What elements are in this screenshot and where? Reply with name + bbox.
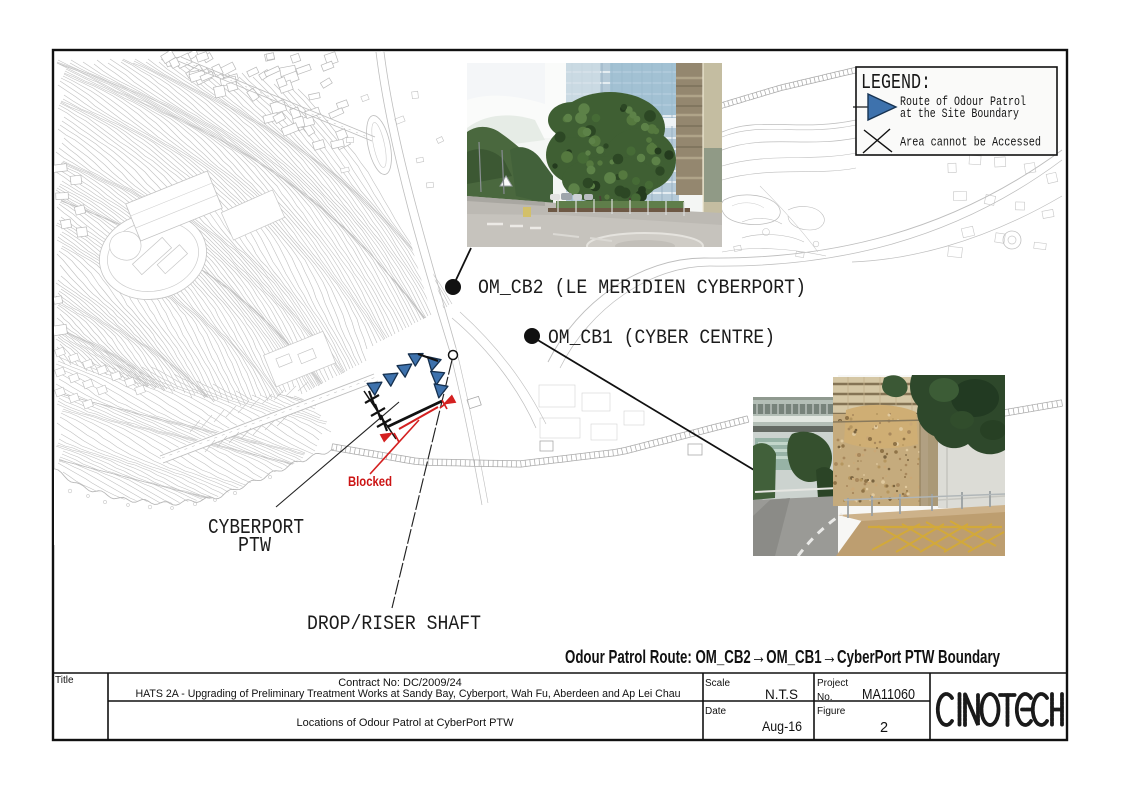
svg-text:N.T.S: N.T.S [765,686,798,702]
svg-text:DROP/RISER SHAFT: DROP/RISER SHAFT [307,613,481,636]
svg-text:Figure: Figure [817,706,846,717]
svg-text:Title: Title [55,675,74,686]
svg-text:Area cannot be Accessed: Area cannot be Accessed [900,136,1041,150]
svg-text:OM_CB1 (CYBER CENTRE): OM_CB1 (CYBER CENTRE) [548,327,775,350]
svg-text:Odour Patrol Route: OM_CB2→OM_: Odour Patrol Route: OM_CB2→OM_CB1→CyberP… [565,645,1000,668]
svg-text:MA11060: MA11060 [862,687,915,703]
svg-text:2: 2 [880,720,888,736]
svg-text:OM_CB2 (LE MERIDIEN CYBERPORT): OM_CB2 (LE MERIDIEN CYBERPORT) [478,277,806,300]
svg-text:PTW: PTW [238,535,271,558]
svg-text:Blocked: Blocked [348,474,392,489]
svg-text:No.: No. [817,692,833,703]
svg-text:Locations of Odour Patrol at C: Locations of Odour Patrol at CyberPort P… [296,717,514,729]
svg-text:Scale: Scale [705,678,730,689]
svg-text:HATS 2A - Upgrading of Prelimi: HATS 2A - Upgrading of Preliminary Treat… [136,688,681,700]
svg-text:Date: Date [705,706,727,717]
svg-text:Aug-16: Aug-16 [762,718,802,734]
svg-text:Project: Project [817,678,848,689]
svg-text:LEGEND:: LEGEND: [861,72,931,95]
svg-text:at the Site Boundary: at the Site Boundary [900,107,1019,121]
